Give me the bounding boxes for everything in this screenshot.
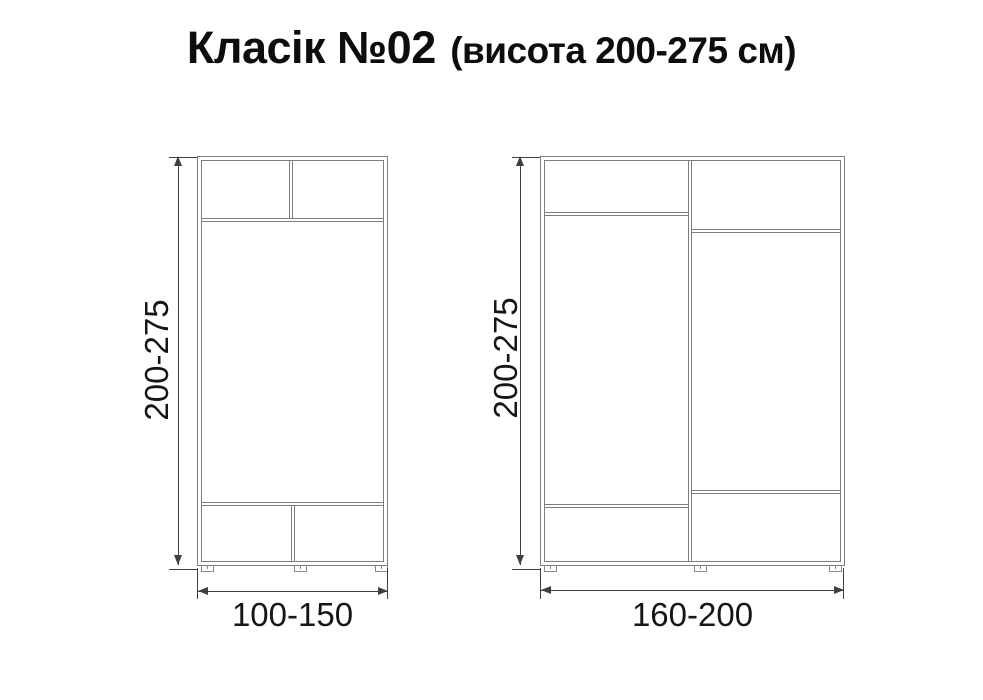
wardrobe-large-right-bottom-shelf — [692, 490, 840, 494]
page: Класік №02 (висота 200-275 см) 200-275 1… — [0, 0, 983, 700]
wardrobe-large-inner-outline — [544, 160, 841, 562]
arrowhead-right-icon — [834, 586, 844, 594]
wardrobe-large-left-top-shelf — [545, 212, 688, 216]
large-width-dimension-line — [541, 590, 844, 591]
large-width-dimension-extension-right — [843, 568, 844, 599]
page-title-main: Класік №02 — [187, 22, 436, 73]
wardrobe-small-bottom-divider — [291, 506, 295, 561]
large-height-dimension-tick-bottom — [512, 569, 540, 570]
arrowhead-left-icon — [198, 587, 208, 595]
wardrobe-foot — [829, 565, 842, 572]
wardrobe-foot — [201, 565, 214, 572]
wardrobe-foot-detail — [207, 565, 208, 569]
wardrobe-foot — [294, 565, 307, 572]
arrowhead-down-icon — [174, 555, 182, 565]
wardrobe-foot-detail — [300, 565, 301, 569]
wardrobe-foot — [694, 565, 707, 572]
wardrobe-small-top-shelf — [202, 218, 383, 222]
arrowhead-left-icon — [541, 586, 551, 594]
arrowhead-right-icon — [378, 587, 388, 595]
large-width-dimension-extension-left — [540, 568, 541, 599]
wardrobe-large-right-top-shelf — [692, 229, 840, 233]
small-height-dimension-label: 200-275 — [138, 275, 174, 445]
arrowhead-down-icon — [516, 555, 524, 565]
large-width-dimension-label: 160-200 — [540, 596, 845, 634]
wardrobe-foot-detail — [835, 565, 836, 569]
small-width-dimension-label: 100-150 — [197, 596, 388, 634]
large-height-dimension-tick-top — [512, 157, 540, 158]
large-height-dimension-label: 200-275 — [487, 273, 523, 443]
small-height-dimension-line — [178, 157, 179, 565]
wardrobe-large-left-bottom-shelf — [545, 504, 688, 508]
wardrobe-foot-detail — [700, 565, 701, 569]
wardrobe-small-top-divider — [289, 161, 293, 218]
wardrobe-large-outline — [540, 156, 845, 566]
wardrobe-foot-detail — [550, 565, 551, 569]
small-height-dimension-tick-top — [169, 157, 197, 158]
wardrobe-large-center-divider — [688, 161, 692, 561]
small-width-dimension-line — [198, 591, 388, 592]
wardrobe-small-outline — [197, 156, 388, 566]
small-height-dimension-tick-bottom — [169, 569, 197, 570]
wardrobe-foot — [544, 565, 557, 572]
wardrobe-foot-detail — [381, 565, 382, 569]
page-title-sub: (висота 200-275 см) — [450, 30, 796, 71]
page-title: Класік №02 (висота 200-275 см) — [0, 22, 983, 74]
